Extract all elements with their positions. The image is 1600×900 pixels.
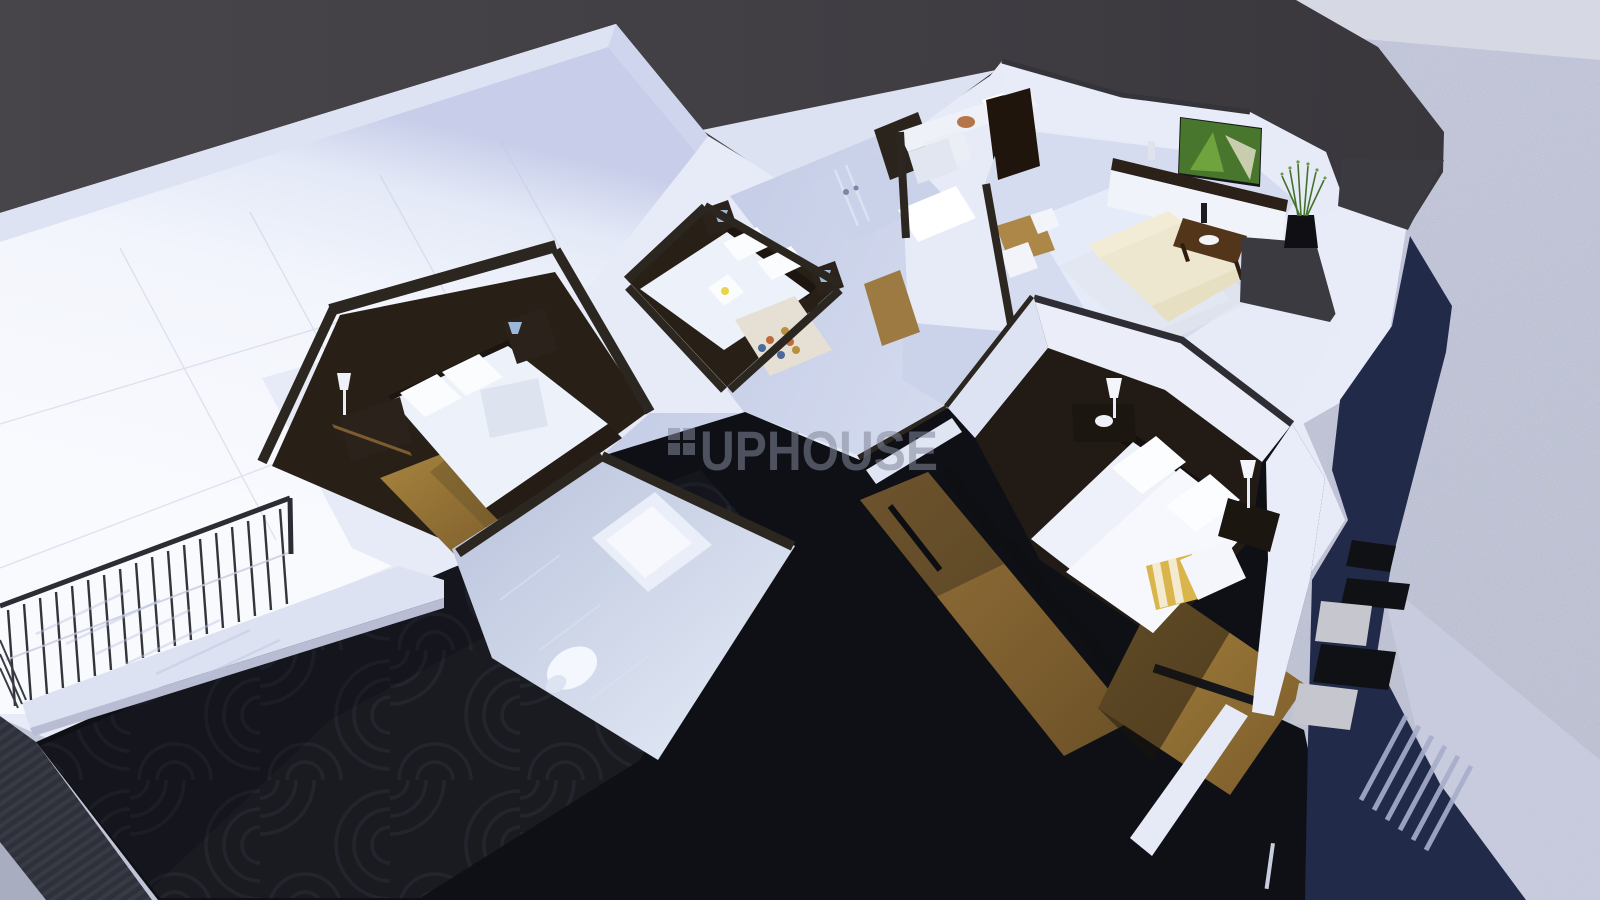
svg-text:UPHOUSE: UPHOUSE (700, 419, 938, 482)
